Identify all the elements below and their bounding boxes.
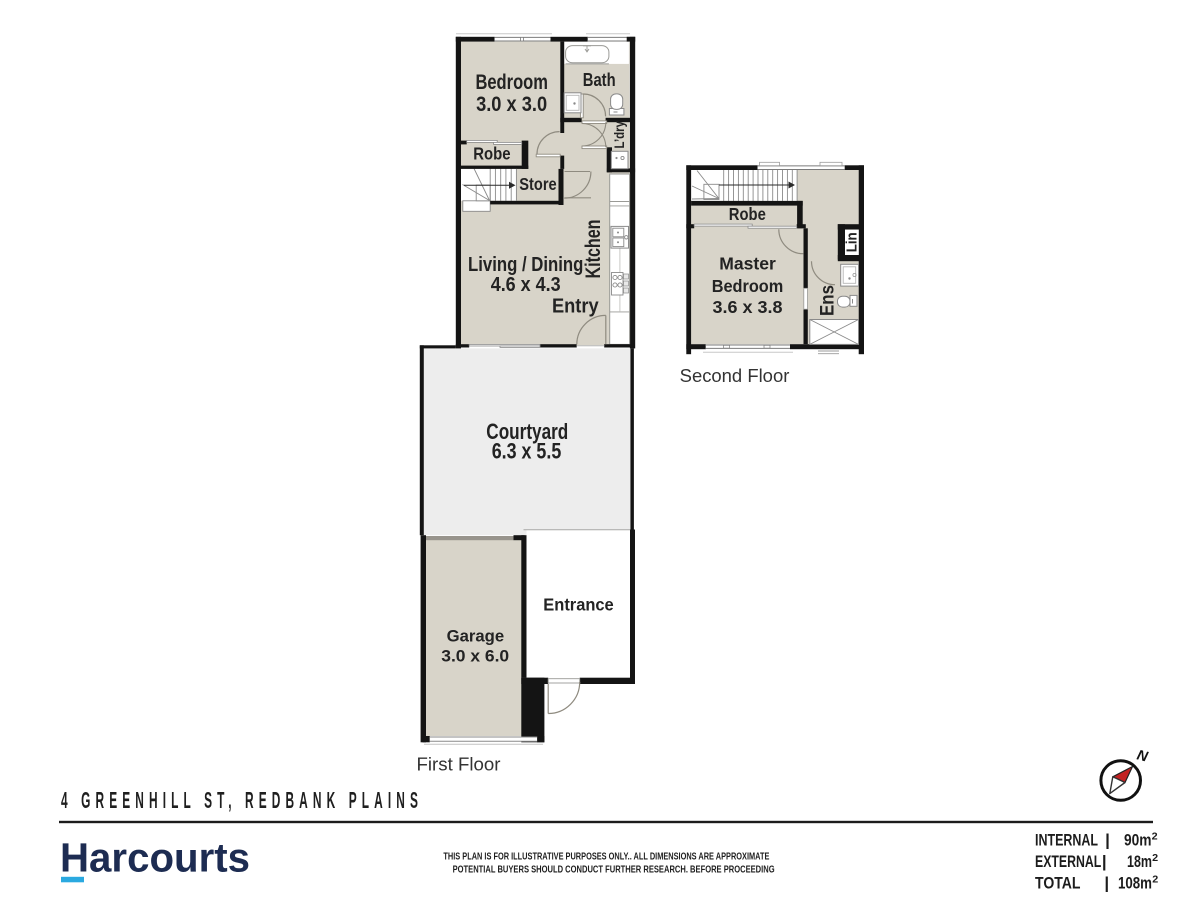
svg-text:THIS PLAN IS FOR ILLUSTRATIVE: THIS PLAN IS FOR ILLUSTRATIVE PURPOSES O… <box>443 852 769 863</box>
svg-text:Entry: Entry <box>552 294 599 317</box>
svg-text:First Floor: First Floor <box>417 753 501 774</box>
svg-text:POTENTIAL BUYERS SHOULD CONDUC: POTENTIAL BUYERS SHOULD CONDUCT FURTHER … <box>453 864 775 875</box>
svg-text:Bedroom: Bedroom <box>475 71 548 94</box>
svg-text:90m: 90m <box>1124 831 1152 850</box>
svg-text:Robe: Robe <box>729 204 766 224</box>
svg-text:4.6 x 4.3: 4.6 x 4.3 <box>491 274 561 296</box>
svg-text:4 GREENHILL ST, REDBANK PLAINS: 4 GREENHILL ST, REDBANK PLAINS <box>61 787 423 813</box>
svg-text:Second Floor: Second Floor <box>680 365 790 386</box>
svg-text:Bath: Bath <box>583 69 616 90</box>
svg-text:3.0 x 6.0: 3.0 x 6.0 <box>441 647 509 666</box>
svg-text:Master: Master <box>719 254 776 274</box>
svg-text:2: 2 <box>1152 874 1158 886</box>
svg-text:Ens: Ens <box>818 285 839 316</box>
svg-text:Entrance: Entrance <box>543 595 614 615</box>
svg-text:TOTAL: TOTAL <box>1035 874 1081 893</box>
svg-text:Store: Store <box>519 174 557 194</box>
svg-text:|: | <box>1102 852 1107 871</box>
svg-text:|: | <box>1105 831 1110 850</box>
svg-text:2: 2 <box>1152 852 1158 864</box>
svg-text:EXTERNAL: EXTERNAL <box>1035 852 1101 871</box>
svg-text:108m: 108m <box>1118 874 1152 893</box>
svg-text:3.6 x 3.8: 3.6 x 3.8 <box>713 297 783 317</box>
svg-text:Bedroom: Bedroom <box>712 276 784 296</box>
svg-text:INTERNAL: INTERNAL <box>1035 831 1098 850</box>
svg-text:3.0 x 3.0: 3.0 x 3.0 <box>476 93 547 116</box>
svg-text:Garage: Garage <box>447 627 505 646</box>
svg-text:6.3 x 5.5: 6.3 x 5.5 <box>492 438 562 463</box>
svg-text:Living / Dining: Living / Dining <box>468 254 583 276</box>
svg-text:18m: 18m <box>1127 852 1152 871</box>
svg-text:|: | <box>1104 874 1109 893</box>
svg-text:Kitchen: Kitchen <box>582 220 605 279</box>
svg-text:Harcourts: Harcourts <box>60 834 250 880</box>
svg-text:Lin: Lin <box>844 232 860 252</box>
svg-text:L’dry: L’dry <box>611 121 627 149</box>
svg-text:2: 2 <box>1152 831 1158 843</box>
svg-text:Robe: Robe <box>473 143 510 163</box>
